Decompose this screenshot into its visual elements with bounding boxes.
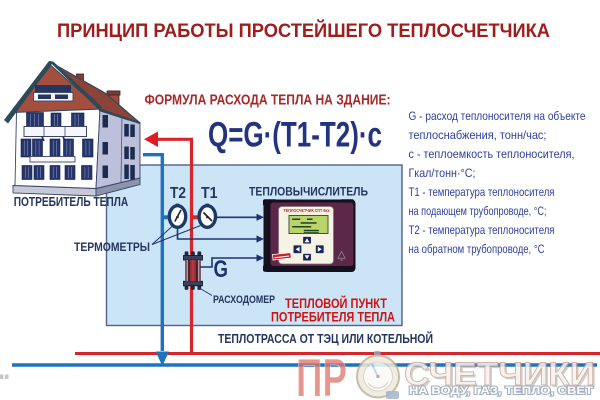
svg-text:РАСХОДОМЕР: РАСХОДОМЕР [213,294,275,306]
svg-text:на обратном трубопроводе, °С: на обратном трубопроводе, °С [409,242,545,256]
svg-text:Т2: Т2 [170,185,186,202]
svg-text:на подающем трубопроводе, °С;: на подающем трубопроводе, °С; [409,204,547,218]
svg-text:Т2 - температура теплоносителя: Т2 - температура теплоносителя [409,223,555,237]
svg-text:G: G [214,256,229,283]
svg-text:ФОРМУЛА РАСХОДА ТЕПЛА НА ЗДАНИ: ФОРМУЛА РАСХОДА ТЕПЛА НА ЗДАНИЕ: [145,92,391,109]
svg-text:Т1: Т1 [201,185,218,202]
svg-text:с - теплоемкость теплоносителя: с - теплоемкость теплоносителя, [409,147,575,161]
svg-text:ТЕПЛОСЧЕТЧИК СПТ 9хх: ТЕПЛОСЧЕТЧИК СПТ 9хх [284,208,331,213]
svg-text:НА ВОДУ, ГАЗ, ТЕПЛО, СВЕТ: НА ВОДУ, ГАЗ, ТЕПЛО, СВЕТ [409,385,593,397]
svg-text:ТЕРМОМЕТРЫ: ТЕРМОМЕТРЫ [74,242,150,254]
svg-text:Гкал/тонн·°С;: Гкал/тонн·°С; [409,166,476,180]
svg-text:ТЕПЛОТРАССА ОТ ТЭЦ ИЛИ КОТЕЛЬН: ТЕПЛОТРАССА ОТ ТЭЦ ИЛИ КОТЕЛЬНОЙ [218,331,433,346]
svg-text:Q=G·(T1-T2)·c: Q=G·(T1-T2)·c [208,116,382,155]
svg-text:ТЕПЛОВЫЧИСЛИТЕЛЬ: ТЕПЛОВЫЧИСЛИТЕЛЬ [249,185,368,199]
svg-text:теплоснабжения, тонн/час;: теплоснабжения, тонн/час; [409,128,547,142]
svg-text:ПРИНЦИП РАБОТЫ ПРОСТЕЙШЕГО ТЕП: ПРИНЦИП РАБОТЫ ПРОСТЕЙШЕГО ТЕПЛОСЧЕТЧИКА [57,18,550,42]
svg-text:ПОТРЕБИТЕЛЯ ТЕПЛА: ПОТРЕБИТЕЛЯ ТЕПЛА [271,310,395,325]
svg-text:G - расход теплоносителя на об: G - расход теплоносителя на объекте [409,109,586,123]
svg-text:ПОТРЕБИТЕЛЬ ТЕПЛА: ПОТРЕБИТЕЛЬ ТЕПЛА [14,194,129,209]
svg-text:ПР: ПР [296,348,347,400]
svg-text:Т1 - температура теплоносителя: Т1 - температура теплоносителя [409,185,555,199]
